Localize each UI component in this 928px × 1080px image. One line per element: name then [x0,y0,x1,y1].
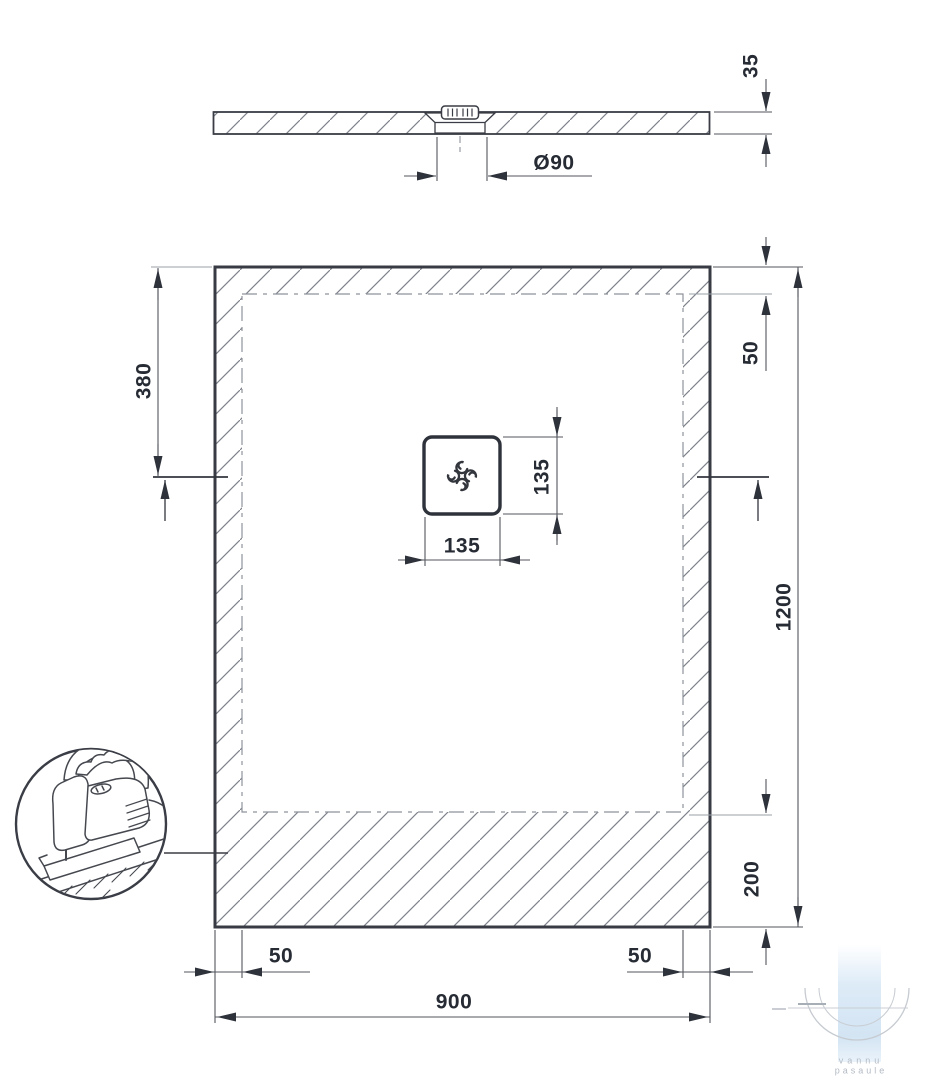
technical-drawing-shower-tray: 35 Ø90 380 50 1200 135 135 200 50 50 900… [0,0,928,1080]
drain-trap-profile [425,106,495,152]
dim-top-band-label: 50 [741,341,762,365]
dim-length-label: 1200 [774,583,795,632]
dim-drain-diameter-label: Ø90 [533,153,574,174]
watermark-logo [772,944,909,1062]
drain-square [424,437,500,514]
dim-right-band-label: 50 [628,946,652,967]
dim-bottom-band-label: 200 [742,861,763,898]
dim-thickness-label: 35 [741,54,762,78]
watermark-brand-line1: vannu [839,1057,884,1066]
dim-drain-from-top-label: 380 [134,363,155,400]
dim-left-band-label: 50 [269,946,293,967]
dim-width-label: 900 [436,992,473,1013]
side-profile-view [214,79,773,181]
watermark-brand-line2: pasaule [835,1067,888,1076]
dim-thickness-lines [714,79,772,167]
dim-drain-width-label: 135 [444,536,481,557]
dim-drain-height-label: 135 [532,459,553,496]
jigsaw-detail-callout [16,737,228,918]
plan-view [151,237,803,1023]
